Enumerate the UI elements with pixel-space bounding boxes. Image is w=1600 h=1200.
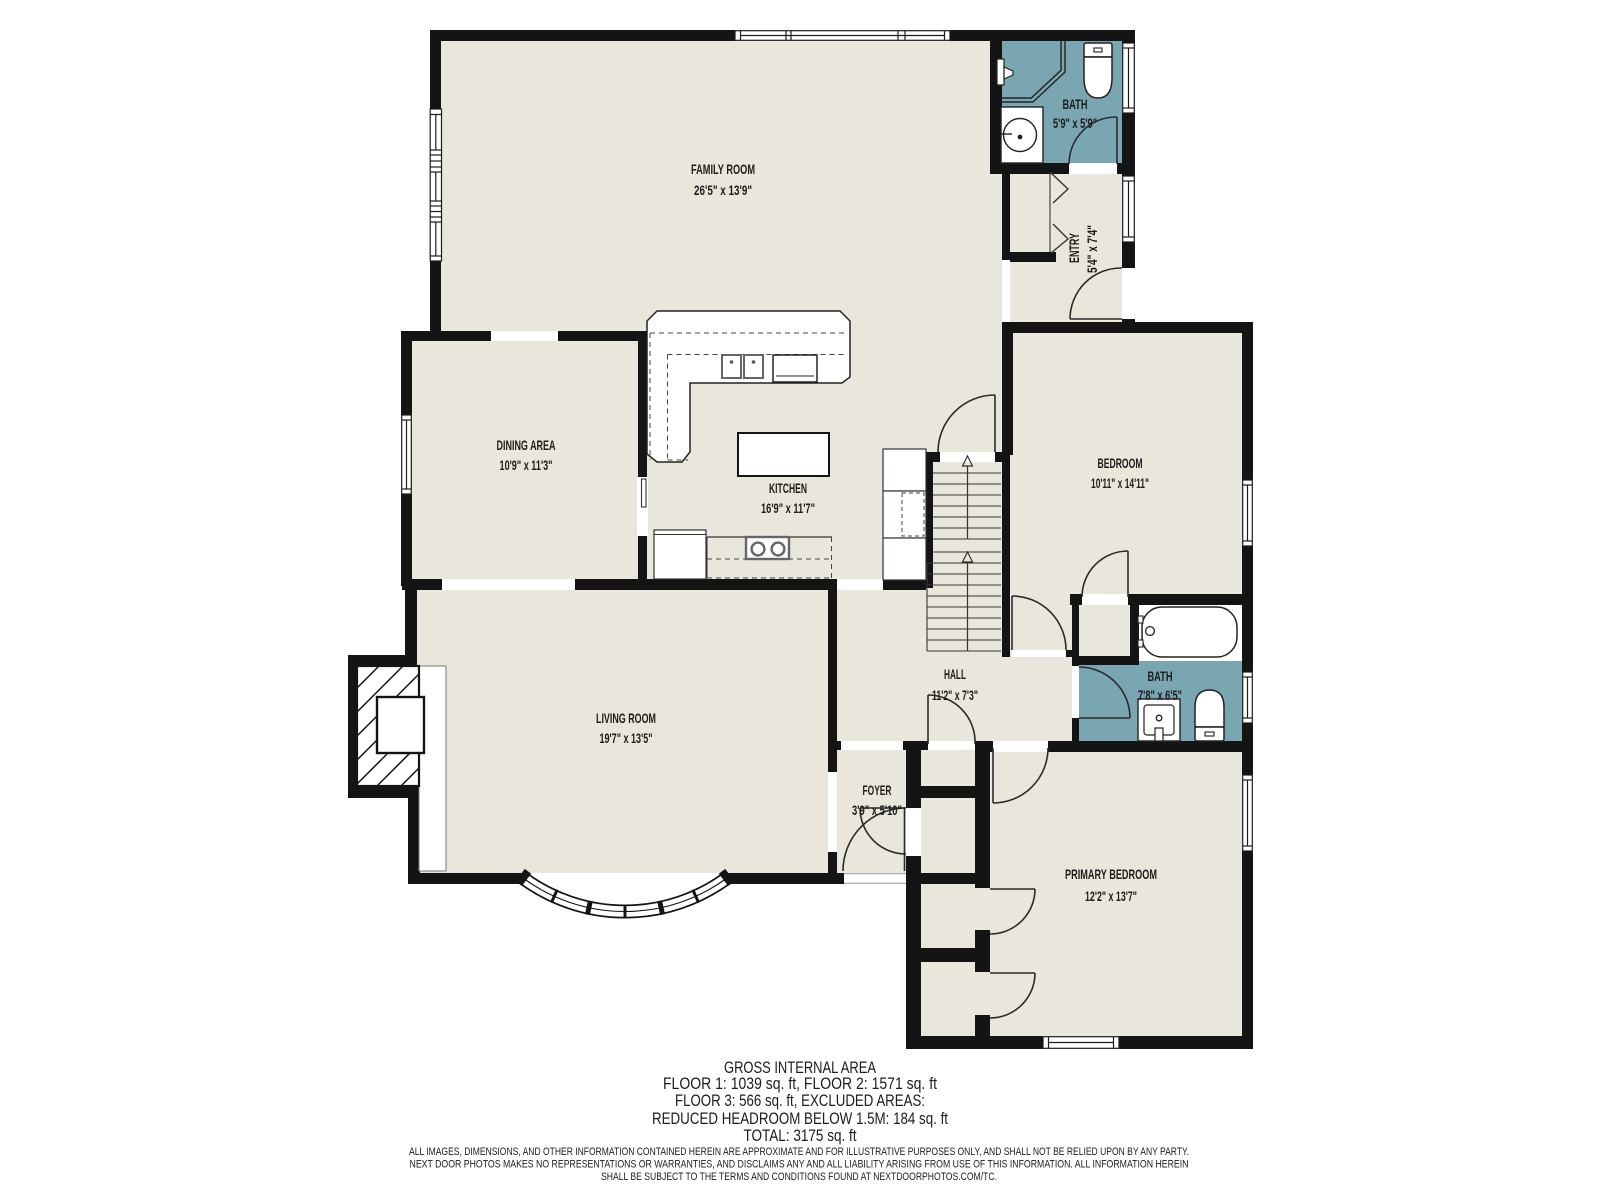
svg-text:SHALL BE SUBJECT TO THE TERMS: SHALL BE SUBJECT TO THE TERMS AND CONDIT… — [601, 1171, 997, 1183]
svg-text:ENTRY: ENTRY — [1066, 233, 1082, 263]
svg-text:FLOOR 3: 566 sq. ft, EXCLUDED: FLOOR 3: 566 sq. ft, EXCLUDED AREAS: — [675, 1092, 925, 1110]
svg-text:16'9" x 11'7": 16'9" x 11'7" — [761, 500, 815, 516]
svg-text:7'8" x 6'5": 7'8" x 6'5" — [1138, 687, 1182, 703]
svg-text:FOYER: FOYER — [863, 782, 892, 798]
svg-text:REDUCED HEADROOM BELOW 1.5M: 1: REDUCED HEADROOM BELOW 1.5M: 184 sq. ft — [652, 1110, 948, 1128]
svg-text:KITCHEN: KITCHEN — [769, 480, 807, 496]
svg-text:HALL: HALL — [944, 666, 966, 682]
svg-text:3'9" x 5'10": 3'9" x 5'10" — [852, 802, 902, 818]
svg-text:11'2" x 7'3": 11'2" x 7'3" — [932, 687, 978, 703]
svg-text:19'7" x 13'5": 19'7" x 13'5" — [600, 730, 653, 746]
svg-text:DINING AREA: DINING AREA — [497, 437, 556, 453]
svg-text:ALL IMAGES, DIMENSIONS, AND OT: ALL IMAGES, DIMENSIONS, AND OTHER INFORM… — [409, 1146, 1189, 1158]
svg-text:10'11" x 14'11": 10'11" x 14'11" — [1091, 475, 1149, 491]
svg-text:PRIMARY BEDROOM: PRIMARY BEDROOM — [1065, 866, 1157, 882]
svg-text:26'5" x 13'9": 26'5" x 13'9" — [694, 182, 752, 198]
svg-text:FLOOR 1: 1039 sq. ft, FLOOR 2:: FLOOR 1: 1039 sq. ft, FLOOR 2: 1571 sq. … — [663, 1075, 937, 1093]
svg-text:5'4" x 7'4": 5'4" x 7'4" — [1084, 225, 1100, 273]
svg-text:LIVING ROOM: LIVING ROOM — [596, 710, 656, 726]
svg-text:TOTAL: 3175 sq. ft: TOTAL: 3175 sq. ft — [744, 1127, 857, 1145]
svg-text:12'2" x 13'7": 12'2" x 13'7" — [1085, 888, 1137, 904]
svg-text:NEXT DOOR PHOTOS MAKES NO REPR: NEXT DOOR PHOTOS MAKES NO REPRESENTATION… — [410, 1159, 1189, 1171]
svg-text:BEDROOM: BEDROOM — [1098, 455, 1143, 471]
svg-text:BATH: BATH — [1148, 668, 1173, 684]
svg-text:10'9" x 11'3": 10'9" x 11'3" — [500, 457, 553, 473]
svg-text:FAMILY ROOM: FAMILY ROOM — [691, 161, 755, 177]
svg-text:5'9" x 5'9": 5'9" x 5'9" — [1053, 115, 1097, 131]
svg-text:BATH: BATH — [1063, 96, 1088, 112]
